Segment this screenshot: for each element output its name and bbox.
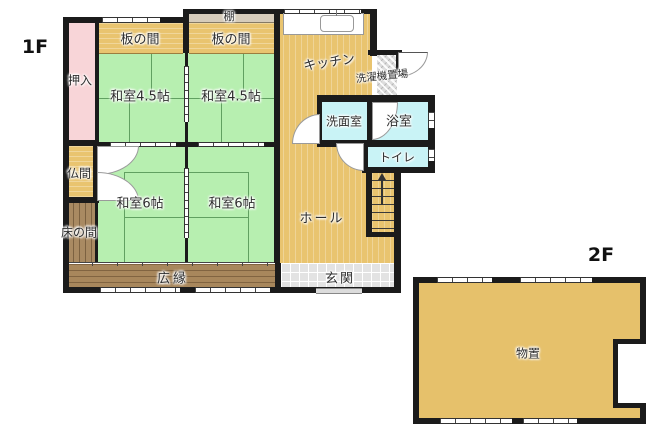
label-hall: ホール <box>299 208 344 227</box>
window <box>437 277 492 283</box>
itanoma-edge <box>189 53 274 54</box>
window <box>284 9 361 14</box>
tatami-seam <box>221 98 222 142</box>
sliding-door <box>184 66 189 122</box>
label-itanoma-1: 板の間 <box>120 29 159 48</box>
label-washitsu6-1: 和室6帖 <box>116 193 163 212</box>
sliding-door <box>184 168 189 238</box>
sliding-door <box>198 142 264 147</box>
wall <box>640 277 646 344</box>
room-hall-ext <box>372 237 396 263</box>
label-genkan: 玄関 <box>325 268 355 287</box>
window <box>195 287 270 293</box>
wall <box>613 339 618 408</box>
wall <box>183 9 189 53</box>
wall <box>413 277 419 424</box>
wall <box>366 232 401 237</box>
label-oshiire: 押入 <box>68 72 92 89</box>
label-tokonoma: 床の間 <box>61 224 97 241</box>
label-itanoma-2: 板の間 <box>211 29 250 48</box>
tatami-seam <box>124 172 185 173</box>
kitchen-sink <box>320 15 354 32</box>
wall <box>317 95 435 102</box>
entrance-door <box>316 288 362 294</box>
label-senmen: 洗面室 <box>326 113 362 130</box>
stairs-arrow-head <box>378 173 386 180</box>
label-washitsu45-2: 和室4.5帖 <box>201 86 261 105</box>
label-bath: 浴室 <box>386 111 412 130</box>
label-hiroen: 広縁 <box>157 268 189 287</box>
window <box>100 287 180 293</box>
notch-void <box>618 344 649 403</box>
tatami-seam <box>188 172 248 173</box>
wall <box>362 167 435 173</box>
wall <box>274 9 280 263</box>
label-washitsu45-1: 和室4.5帖 <box>110 86 170 105</box>
wall <box>63 197 99 203</box>
floor-label-2f: 2F <box>588 244 614 266</box>
wall <box>63 17 69 293</box>
label-washitsu6-2: 和室6帖 <box>208 193 255 212</box>
window <box>428 112 435 128</box>
window <box>440 418 512 424</box>
wall <box>366 173 372 237</box>
window <box>102 17 160 23</box>
label-monooki: 物置 <box>516 345 540 362</box>
wall <box>317 140 435 147</box>
tatami-seam <box>129 98 130 142</box>
wall <box>370 9 377 56</box>
label-tana: 棚 <box>224 8 235 24</box>
itanoma-edge <box>99 53 183 54</box>
tatami-seam <box>124 217 185 218</box>
wall <box>613 339 646 344</box>
window <box>428 149 435 161</box>
sliding-door-track <box>67 262 276 266</box>
wall <box>428 95 435 173</box>
tatami-seam <box>188 217 248 218</box>
window <box>520 277 592 283</box>
stairs <box>372 173 395 232</box>
floor-plan: 1F 2F 押入 板の間 棚 板の間 キッチン 洗濯機置場 和室4.5帖 和室4… <box>0 0 649 439</box>
label-toilet: トイレ <box>379 149 415 166</box>
floor-label-1f: 1F <box>22 36 48 58</box>
tatami-seam <box>248 172 249 262</box>
stairs-up-arrow <box>381 179 383 205</box>
label-butsuma: 仏間 <box>67 165 91 182</box>
wall <box>613 403 646 408</box>
sink-tap <box>336 10 337 16</box>
wall <box>95 20 99 142</box>
window <box>523 418 577 424</box>
